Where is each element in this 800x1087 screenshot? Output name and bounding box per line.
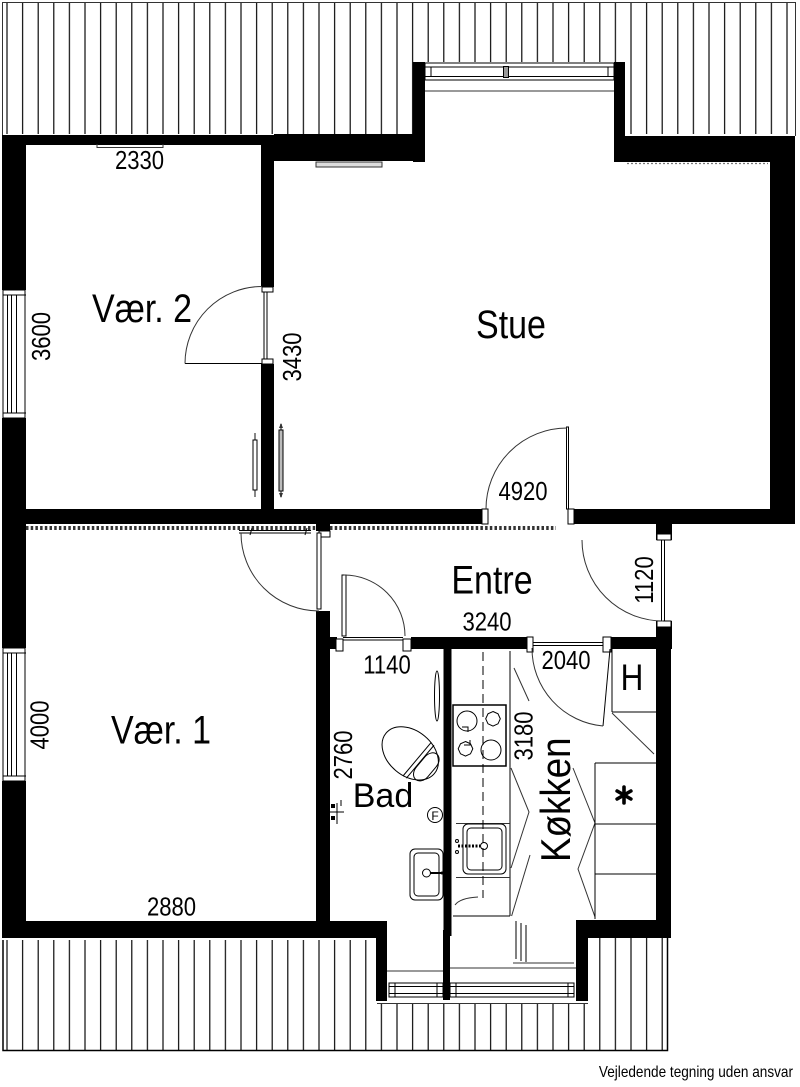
svg-text:3180: 3180: [510, 711, 539, 760]
svg-text:4000: 4000: [26, 700, 55, 749]
svg-text:Stue: Stue: [476, 301, 546, 346]
svg-text:F: F: [431, 809, 438, 823]
svg-text:H: H: [621, 658, 644, 699]
svg-text:Bad: Bad: [353, 777, 414, 815]
svg-text:3600: 3600: [27, 312, 56, 361]
svg-text:Entre: Entre: [451, 557, 532, 602]
svg-text:2760: 2760: [329, 730, 358, 779]
svg-text:Vejledende tegning uden ansvar: Vejledende tegning uden ansvar: [599, 1064, 793, 1081]
svg-text:1140: 1140: [363, 651, 410, 680]
svg-text:3240: 3240: [462, 608, 511, 637]
svg-text:4920: 4920: [498, 477, 547, 506]
svg-text:2040: 2040: [541, 646, 590, 675]
svg-text:Vær. 1: Vær. 1: [111, 707, 211, 752]
svg-text:2330: 2330: [115, 146, 164, 175]
svg-text:3430: 3430: [278, 332, 307, 381]
svg-text:Vær. 2: Vær. 2: [92, 285, 192, 330]
svg-text:1120: 1120: [630, 556, 659, 603]
svg-text:Køkken: Køkken: [533, 737, 580, 862]
svg-text:2880: 2880: [147, 893, 196, 922]
